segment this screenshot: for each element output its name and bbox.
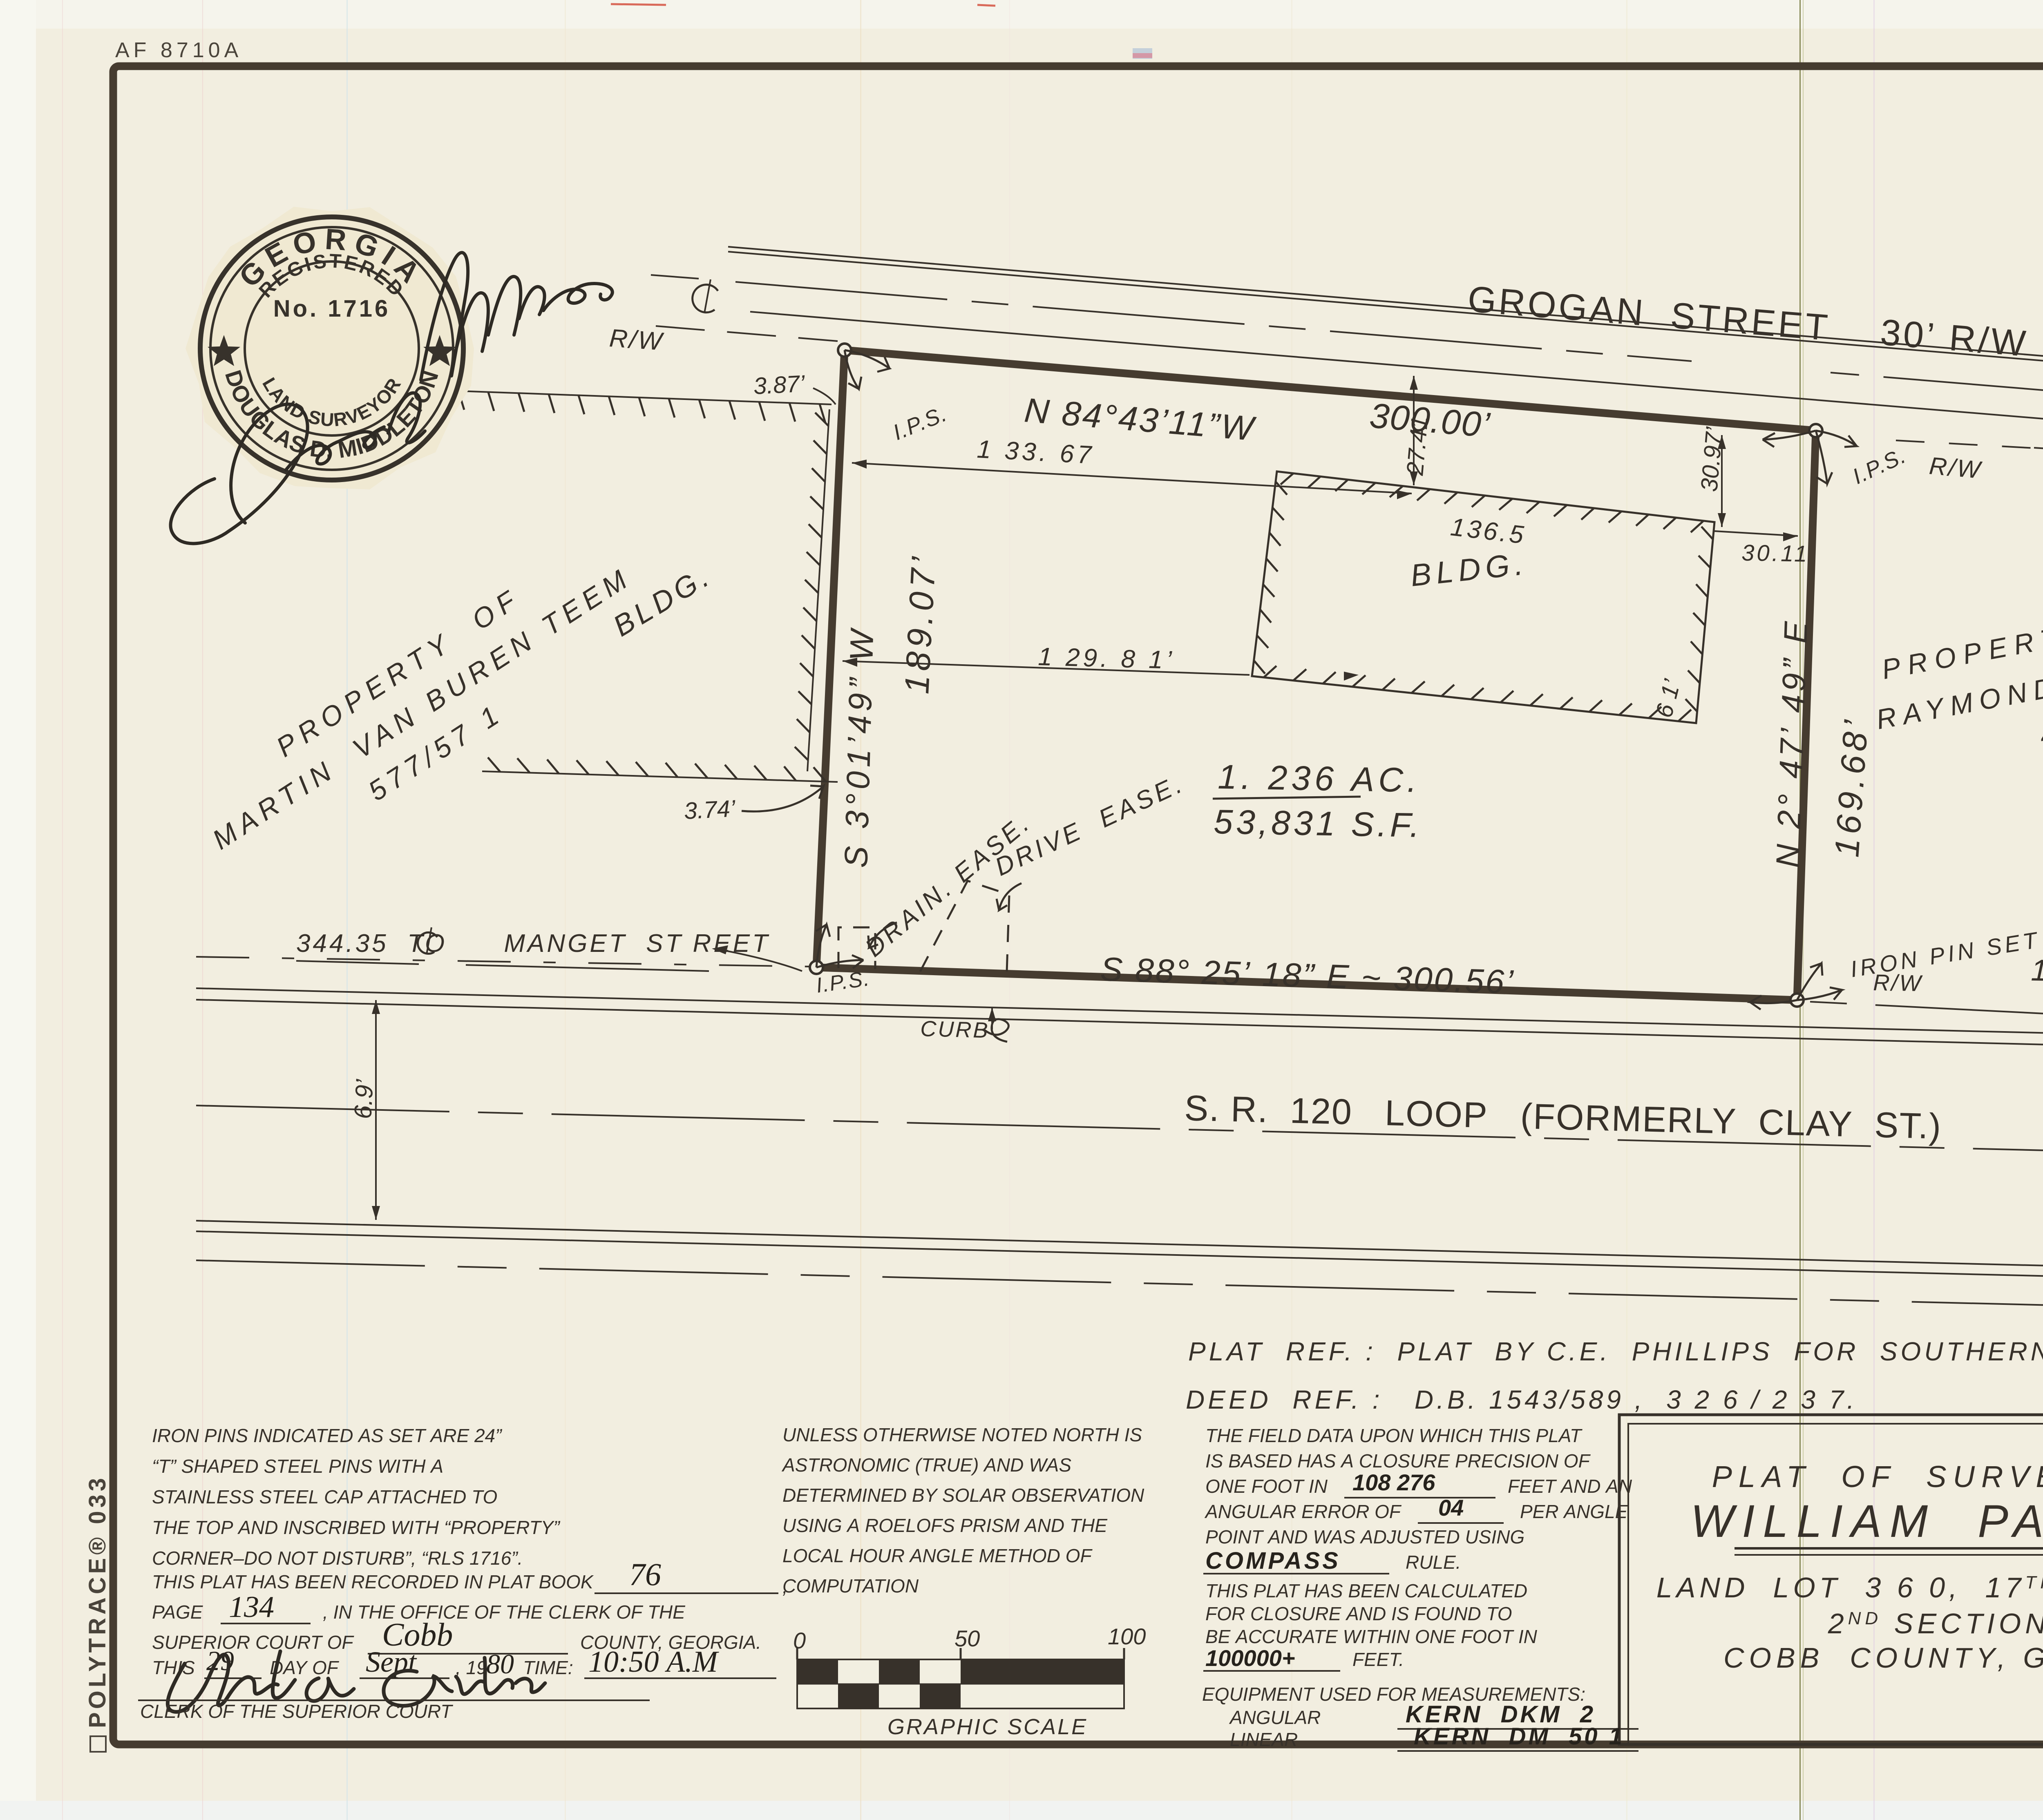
svg-text:IS BASED HAS A CLOSURE PRECISI: IS BASED HAS A CLOSURE PRECISION OF	[1205, 1450, 1591, 1472]
svg-text:UNLESS OTHERWISE NOTED NORTH I: UNLESS OTHERWISE NOTED NORTH IS	[782, 1424, 1142, 1445]
svg-text:ONE FOOT IN: ONE FOOT IN	[1205, 1476, 1328, 1497]
svg-text:344.35 TO MANGET ST REE: 344.35 TO MANGET ST REET	[296, 929, 770, 958]
svg-text:30.97’: 30.97’	[1696, 426, 1728, 493]
svg-text:3.87’: 3.87’	[753, 370, 806, 400]
svg-text:189.07’: 189.07’	[897, 552, 943, 695]
svg-text:GRAPHIC SCALE: GRAPHIC SCALE	[887, 1715, 1088, 1739]
svg-text:3.74’: 3.74’	[683, 795, 736, 824]
svg-text:CLERK OF THE SUPERIOR COURT: CLERK OF THE SUPERIOR COURT	[140, 1701, 453, 1722]
svg-text:POLYTRACE® 033: POLYTRACE® 033	[84, 1475, 111, 1728]
svg-text:ASTRONOMIC (TRUE) AND WAS: ASTRONOMIC (TRUE) AND WAS	[781, 1454, 1071, 1476]
svg-text:LOCAL HOUR ANGLE METHOD OF: LOCAL HOUR ANGLE METHOD OF	[782, 1545, 1093, 1566]
svg-text:PLAT OF SURVEY FOR: PLAT OF SURVEY FOR	[1712, 1460, 2043, 1494]
svg-text:DEED REF. : D.B. 1543/589 ,: DEED REF. : D.B. 1543/589 , 3 2 6 / 2 3 …	[1186, 1385, 1857, 1414]
svg-text:04: 04	[1438, 1495, 1464, 1521]
svg-text:R/W: R/W	[1873, 969, 1923, 996]
svg-text:10:50 A.M: 10:50 A.M	[588, 1645, 720, 1679]
svg-text:IRON PINS INDICATED AS SET ARE: IRON PINS INDICATED AS SET ARE 24”	[152, 1425, 503, 1446]
svg-text:COMPUTATION: COMPUTATION	[782, 1575, 919, 1597]
svg-text:RULE.: RULE.	[1406, 1552, 1461, 1573]
svg-text:100000+: 100000+	[1205, 1645, 1295, 1671]
svg-text:6.9’: 6.9’	[349, 1078, 378, 1120]
svg-text:THIS: THIS	[152, 1657, 195, 1678]
svg-text:CORNER–DO NOT DISTURB”, “RLS 1: CORNER–DO NOT DISTURB”, “RLS 1716”.	[152, 1548, 523, 1569]
svg-text:ANGULAR ERROR OF: ANGULAR ERROR OF	[1204, 1501, 1402, 1522]
svg-text:BE ACCURATE WITHIN ONE FOOT IN: BE ACCURATE WITHIN ONE FOOT IN	[1205, 1626, 1538, 1647]
svg-text:50: 50	[954, 1626, 980, 1651]
svg-text:30.11: 30.11	[1741, 540, 1810, 567]
svg-text:THIS PLAT HAS BEEN RECORDED IN: THIS PLAT HAS BEEN RECORDED IN PLAT BOOK	[152, 1571, 594, 1592]
svg-text:FEET.: FEET.	[1352, 1649, 1404, 1670]
svg-text:THE FIELD DATA UPON WHICH THIS: THE FIELD DATA UPON WHICH THIS PLAT	[1205, 1425, 1583, 1446]
svg-text:AF 8710A: AF 8710A	[115, 38, 242, 62]
svg-text:LAND LOT 3 6 0, 17TH DISTRI: LAND LOT 3 6 0, 17TH DISTRICT,	[1656, 1572, 2043, 1603]
svg-text:0: 0	[793, 1628, 806, 1653]
svg-text:108 276: 108 276	[1352, 1469, 1435, 1495]
svg-text:DETERMINED BY SOLAR OBSERVATIO: DETERMINED BY SOLAR OBSERVATION	[782, 1485, 1144, 1506]
svg-text:1 29. 8 1’: 1 29. 8 1’	[1038, 643, 1176, 674]
svg-text:FOR CLOSURE AND IS FOUND TO: FOR CLOSURE AND IS FOUND TO	[1205, 1603, 1512, 1624]
svg-text:KERN DM 50 1: KERN DM 50 1	[1414, 1723, 1625, 1750]
svg-text:COMPASS: COMPASS	[1205, 1548, 1341, 1574]
svg-text:THE TOP AND INSCRIBED WITH “PR: THE TOP AND INSCRIBED WITH “PROPERTY”	[152, 1517, 561, 1538]
svg-text:FEET AND AN: FEET AND AN	[1508, 1476, 1632, 1497]
svg-text:53,831 S.F.: 53,831 S.F.	[1214, 802, 1423, 844]
svg-text:WILLIAM PALMER: WILLIAM PALMER	[1690, 1496, 2043, 1547]
svg-text:1. 236 AC.: 1. 236 AC.	[1218, 757, 1421, 799]
svg-text:DAY OF: DAY OF	[270, 1657, 340, 1678]
svg-text:“T” SHAPED STEEL PINS WITH A: “T” SHAPED STEEL PINS WITH A	[152, 1456, 443, 1477]
svg-text:PER ANGLE: PER ANGLE	[1520, 1501, 1628, 1522]
svg-text:TIME:: TIME:	[523, 1657, 573, 1678]
svg-text:USING A ROELOFS PRISM AND THE: USING A ROELOFS PRISM AND THE	[782, 1515, 1108, 1536]
svg-text:R/W: R/W	[1928, 452, 1983, 484]
svg-text:PAGE: PAGE	[152, 1601, 203, 1623]
svg-text:134: 134	[229, 1590, 274, 1624]
svg-text:80: 80	[486, 1648, 514, 1679]
svg-text:Sept: Sept	[366, 1646, 417, 1678]
svg-text:76: 76	[629, 1556, 661, 1592]
svg-text:100: 100	[1108, 1623, 1146, 1649]
svg-text:, 19: , 19	[456, 1657, 487, 1678]
svg-text:No. 1716: No. 1716	[273, 295, 391, 322]
svg-text:STAINLESS STEEL CAP ATTACHED T: STAINLESS STEEL CAP ATTACHED TO	[152, 1486, 497, 1507]
svg-text:THIS PLAT HAS BEEN CALCULATED: THIS PLAT HAS BEEN CALCULATED	[1205, 1580, 1527, 1601]
svg-text:LINEAR: LINEAR	[1230, 1729, 1298, 1750]
svg-text:CURB: CURB	[920, 1016, 990, 1043]
svg-text:PLAT REF. : PLAT BY C.E. P: PLAT REF. : PLAT BY C.E. PHILLIPS FOR SO…	[1188, 1337, 2043, 1366]
svg-text:27.41: 27.41	[1401, 415, 1433, 477]
svg-text:ANGULAR: ANGULAR	[1229, 1707, 1321, 1728]
svg-text:, IN THE OFFICE OF THE CLERK O: , IN THE OFFICE OF THE CLERK OF THE	[323, 1601, 686, 1623]
svg-text:COBB COUNTY, GEORGIA: COBB COUNTY, GEORGIA	[1723, 1642, 2043, 1674]
svg-text:POINT AND WAS ADJUSTED USING: POINT AND WAS ADJUSTED USING	[1205, 1526, 1524, 1548]
svg-text:189.2’: 189.2’	[2031, 953, 2043, 989]
svg-text:SUPERIOR COURT OF: SUPERIOR COURT OF	[152, 1632, 354, 1653]
svg-text:R/W: R/W	[608, 324, 665, 356]
